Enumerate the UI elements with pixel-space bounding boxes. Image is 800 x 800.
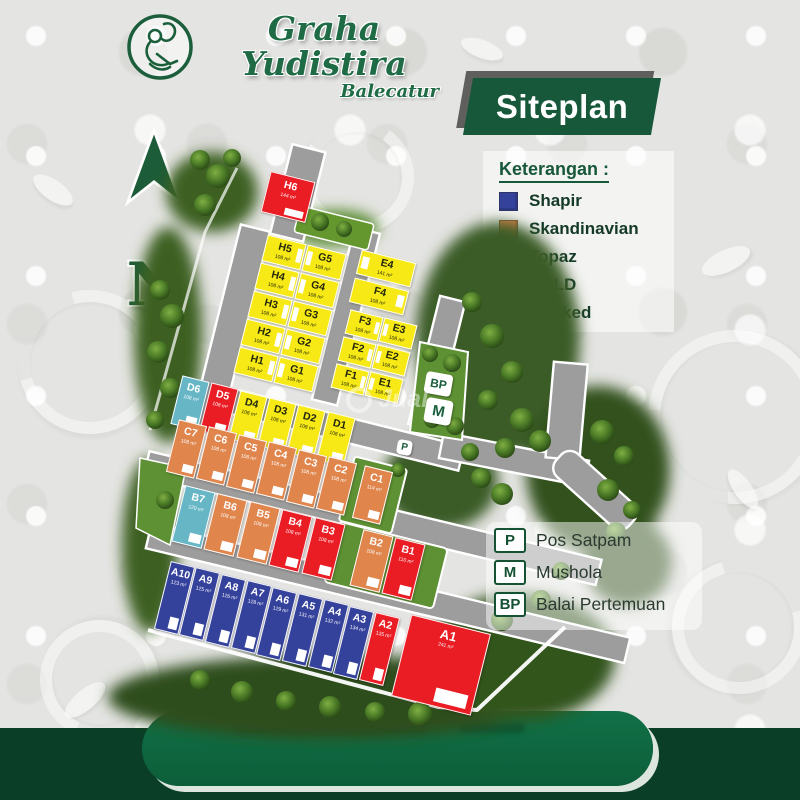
facility-label: Balai Pertemuan	[536, 594, 665, 615]
road	[312, 227, 380, 405]
facility-items: PPos SatpamMMusholaBPBalai Pertemuan	[494, 528, 694, 617]
facilities-legend: PPos SatpamMMusholaBPBalai Pertemuan	[486, 522, 702, 630]
siteplan-poster: { "header": { "title": "Graha Yudistira"…	[0, 0, 800, 800]
facility-code-badge: P	[494, 528, 526, 553]
facility-item-p: PPos Satpam	[494, 528, 694, 553]
road	[546, 362, 588, 461]
facility-label: Mushola	[536, 562, 602, 583]
watermark: Jual	[346, 385, 428, 414]
watermark-text: Jual	[378, 385, 428, 414]
watermark-circle-icon	[346, 387, 372, 413]
facility-code-badge: M	[494, 560, 526, 585]
facility-item-bp: BPBalai Pertemuan	[494, 592, 694, 617]
facility-label: Pos Satpam	[536, 530, 631, 551]
facility-code-badge: BP	[494, 592, 526, 617]
facility-item-m: MMushola	[494, 560, 694, 585]
